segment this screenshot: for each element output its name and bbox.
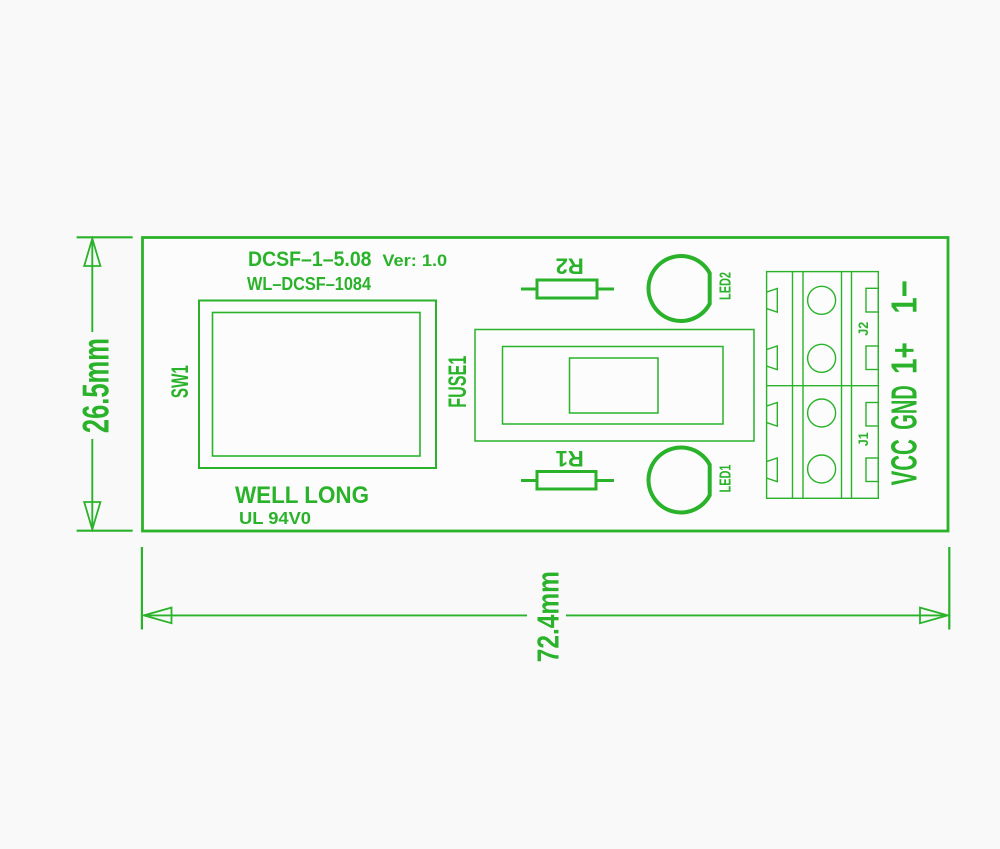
svg-text:WELL LONG: WELL LONG — [235, 482, 369, 509]
svg-text:DCSF–1–5.08: DCSF–1–5.08 — [248, 248, 372, 271]
svg-text:R2: R2 — [556, 254, 584, 279]
svg-text:Ver: 1.0: Ver: 1.0 — [382, 251, 447, 270]
svg-text:J1: J1 — [855, 432, 871, 446]
svg-text:WL–DCSF–1084: WL–DCSF–1084 — [247, 273, 372, 294]
svg-text:UL 94V0: UL 94V0 — [239, 508, 311, 528]
svg-text:1+: 1+ — [884, 342, 925, 374]
svg-text:R1: R1 — [556, 446, 584, 471]
svg-text:GND: GND — [884, 385, 925, 430]
svg-text:72.4mm: 72.4mm — [531, 571, 566, 662]
svg-text:J2: J2 — [855, 322, 871, 336]
svg-text:VCC: VCC — [884, 439, 925, 485]
svg-text:LED2: LED2 — [718, 272, 735, 300]
svg-text:FUSE1: FUSE1 — [444, 356, 472, 408]
svg-text:LED1: LED1 — [718, 464, 735, 492]
svg-text:26.5mm: 26.5mm — [76, 338, 117, 433]
svg-text:1−: 1− — [884, 280, 925, 313]
svg-text:SW1: SW1 — [167, 365, 194, 398]
